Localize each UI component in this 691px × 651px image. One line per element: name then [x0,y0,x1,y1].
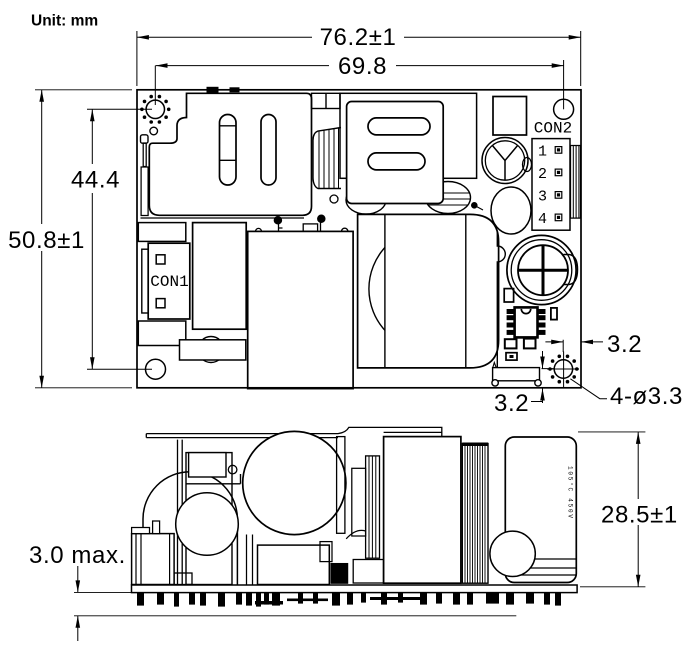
svg-text:4: 4 [538,211,547,228]
svg-text:3.0 max.: 3.0 max. [29,542,126,569]
svg-text:105°C 450V: 105°C 450V [567,466,574,518]
svg-text:44.4: 44.4 [71,167,120,194]
svg-text:69.8: 69.8 [338,53,387,80]
svg-text:3.2: 3.2 [607,331,642,358]
svg-text:CON1: CON1 [150,273,188,291]
svg-text:28.5±1: 28.5±1 [601,502,678,529]
svg-text:76.2±1: 76.2±1 [320,24,397,51]
svg-text:2: 2 [538,166,547,183]
svg-text:3.2: 3.2 [494,390,529,417]
svg-text:3: 3 [538,188,547,205]
svg-text:CON2: CON2 [534,120,572,138]
svg-text:Unit: mm: Unit: mm [31,13,98,30]
svg-text:50.8±1: 50.8±1 [8,227,85,254]
svg-text:1: 1 [538,143,547,160]
svg-text:4-ø3.3: 4-ø3.3 [610,383,683,410]
